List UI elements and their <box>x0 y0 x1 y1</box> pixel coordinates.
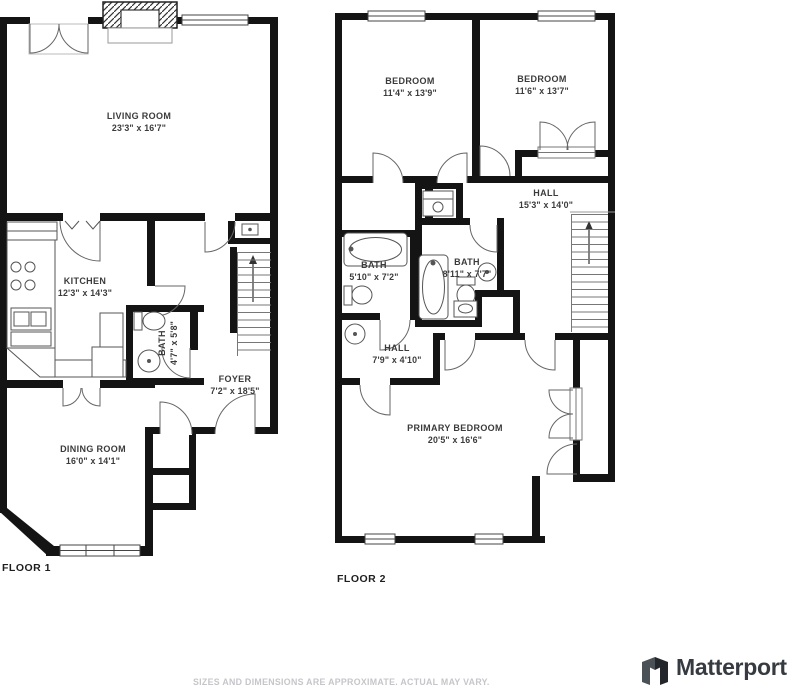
room-label-bath-left: BATH 5'10" x 7'2" <box>349 259 398 283</box>
room-label-dining-room: DINING ROOM 16'0" x 14'1" <box>60 443 126 467</box>
room-name: DINING ROOM <box>60 443 126 455</box>
room-name: HALL <box>372 342 421 354</box>
room-label-living-room: LIVING ROOM 23'3" x 16'7" <box>107 110 171 134</box>
room-label-bedroom-2: BEDROOM 11'6" x 13'7" <box>515 73 569 97</box>
room-label-foyer: FOYER 7'2" x 18'5" <box>210 373 259 397</box>
room-name: LIVING ROOM <box>107 110 171 122</box>
room-dims: 12'3" x 14'3" <box>58 287 112 299</box>
room-dims: 11'6" x 13'7" <box>515 85 569 97</box>
matterport-logo-icon <box>641 656 669 686</box>
room-dims: 23'3" x 16'7" <box>107 122 171 134</box>
room-name: FOYER <box>210 373 259 385</box>
sink-icon <box>345 324 365 344</box>
room-name: HALL <box>519 187 573 199</box>
toilet-icon <box>344 286 372 305</box>
fireplace-icon <box>103 2 177 43</box>
disclaimer-text: SIZES AND DIMENSIONS ARE APPROXIMATE. AC… <box>193 677 490 686</box>
room-dims: 15'3" x 14'0" <box>519 199 573 211</box>
room-name: BATH <box>156 321 168 365</box>
room-dims: 7'2" x 18'5" <box>210 385 259 397</box>
floor2-caption: FLOOR 2 <box>337 573 386 585</box>
room-label-bath-middle: BATH 8'11" x 7'7" <box>443 256 492 280</box>
room-name: BATH <box>443 256 492 268</box>
room-label-hall-small: HALL 7'9" x 4'10" <box>372 342 421 366</box>
matterport-logo-text: Matterport <box>676 654 787 681</box>
room-dims: 7'9" x 4'10" <box>372 354 421 366</box>
room-name: KITCHEN <box>58 275 112 287</box>
stairs-floor1 <box>237 252 271 356</box>
room-label-primary-bedroom: PRIMARY BEDROOM 20'5" x 16'6" <box>407 422 503 446</box>
room-name: BATH <box>349 259 398 271</box>
room-label-hall-upper: HALL 15'3" x 14'0" <box>519 187 573 211</box>
floorplan-canvas: LIVING ROOM 23'3" x 16'7" KITCHEN 12'3" … <box>0 0 800 686</box>
room-name: BEDROOM <box>383 75 437 87</box>
room-name: BEDROOM <box>515 73 569 85</box>
room-dims: 5'10" x 7'2" <box>349 271 398 283</box>
room-dims: 16'0" x 14'1" <box>60 455 126 467</box>
room-dims: 4'7" x 5'8" <box>168 321 180 365</box>
laundry-icon <box>423 191 453 216</box>
room-label-kitchen: KITCHEN 12'3" x 14'3" <box>58 275 112 299</box>
utility-fixture-icon <box>242 224 258 235</box>
vanity-icon <box>454 301 477 317</box>
room-dims: 8'11" x 7'7" <box>443 268 492 280</box>
room-name: PRIMARY BEDROOM <box>407 422 503 434</box>
floor1-caption: FLOOR 1 <box>2 562 51 574</box>
room-dims: 20'5" x 16'6" <box>407 434 503 446</box>
room-label-bath-floor1: BATH 4'7" x 5'8" <box>156 321 180 365</box>
stairs-floor2 <box>571 214 608 332</box>
room-label-bedroom-1: BEDROOM 11'4" x 13'9" <box>383 75 437 99</box>
room-dims: 11'4" x 13'9" <box>383 87 437 99</box>
kitchen-counter <box>7 222 126 377</box>
